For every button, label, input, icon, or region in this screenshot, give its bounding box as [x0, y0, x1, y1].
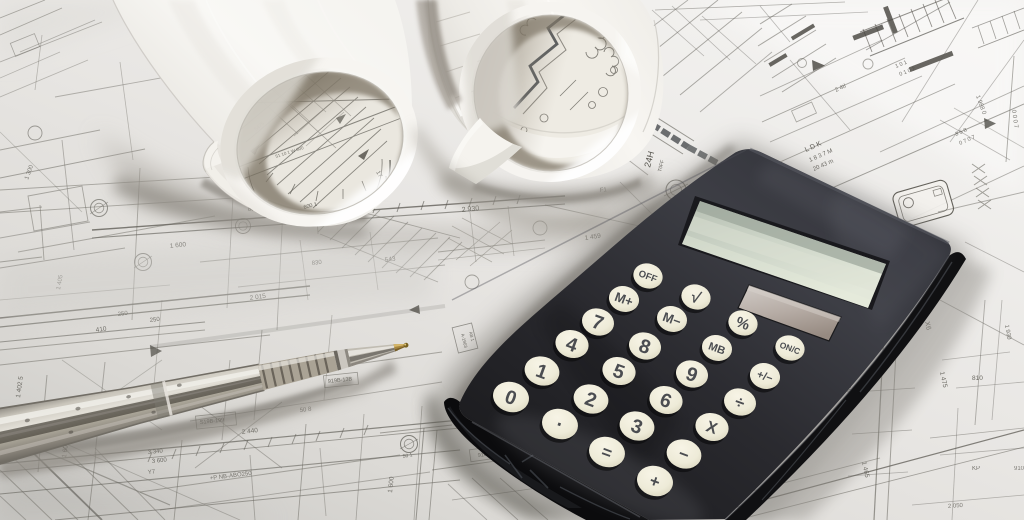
svg-text:910: 910 — [1014, 466, 1024, 472]
svg-text:810: 810 — [972, 375, 983, 382]
svg-text:2 050: 2 050 — [948, 503, 964, 510]
svg-text:KP: KP — [972, 466, 980, 472]
svg-text:Y7: Y7 — [148, 469, 157, 476]
